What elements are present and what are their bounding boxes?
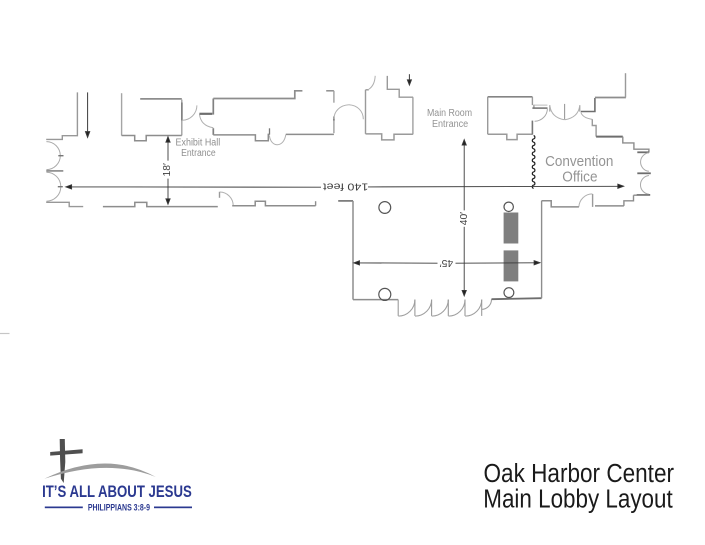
svg-text:140 feet: 140 feet: [323, 181, 368, 192]
svg-text:Main Lobby Layout: Main Lobby Layout: [483, 486, 672, 514]
svg-text:40′: 40′: [459, 212, 470, 225]
svg-text:Exhibit Hall: Exhibit Hall: [176, 137, 221, 148]
svg-text:Entrance: Entrance: [432, 119, 469, 130]
svg-text:Main Room: Main Room: [427, 108, 472, 119]
svg-text:IT’S ALL ABOUT JESUS: IT’S ALL ABOUT JESUS: [42, 482, 192, 501]
svg-text:18′: 18′: [162, 163, 173, 176]
svg-text:45′: 45′: [440, 257, 453, 268]
svg-text:Oak Harbor Center: Oak Harbor Center: [484, 460, 675, 488]
svg-text:Office: Office: [562, 169, 597, 185]
svg-text:Entrance: Entrance: [181, 148, 216, 159]
svg-text:Convention: Convention: [545, 154, 613, 170]
svg-text:PHILIPPIANS 3:8-9: PHILIPPIANS 3:8-9: [88, 502, 150, 512]
